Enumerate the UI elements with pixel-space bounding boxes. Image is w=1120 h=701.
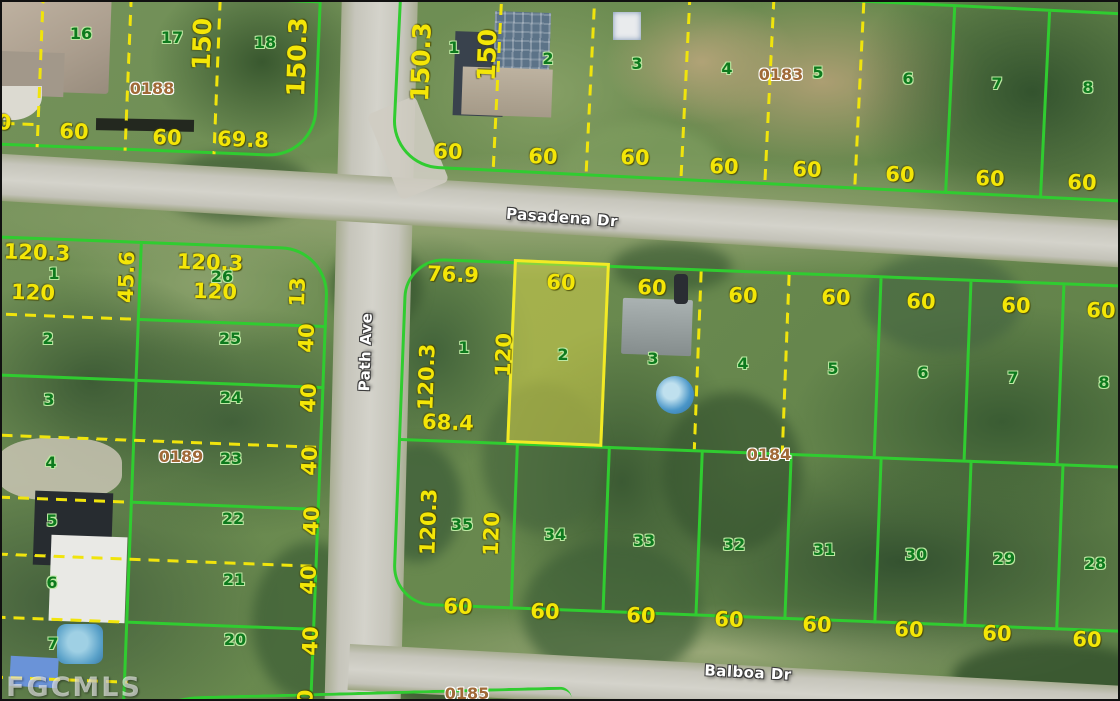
dimension-label: 60 [530,601,560,623]
dimension-label: 0 [0,112,12,133]
dimension-label: 60 [152,127,182,149]
dimension-label: 60 [906,291,936,313]
lot-number: 2 [542,51,553,67]
lot-number: 29 [993,551,1015,567]
lot-number: 7 [47,636,58,652]
street-label-pasadena-dr: Pasadena Dr [506,207,619,230]
lot-number: 1 [458,340,469,356]
lot-number: 2 [557,347,568,363]
dimension-label: 60 [637,277,667,299]
dimension-label: 60 [802,614,832,636]
lot-number: 25 [219,331,241,347]
lot-number: 21 [223,572,245,588]
block-number: 0183 [759,67,804,83]
dimension-label: 150 [474,28,501,81]
dimension-label: 13 [287,277,309,307]
dimension-label: 60 [792,159,822,181]
lot-number: 4 [737,356,748,372]
dimension-label: 69.8 [217,129,270,152]
dimension-label: 60 [821,287,851,309]
dimension-label: 60 [1072,629,1102,651]
dimension-label: 60 [1086,300,1116,322]
dimension-label: 150 [189,17,216,70]
dimension-label: 40 [301,506,323,536]
dimension-label: 68.4 [422,412,475,435]
block-number: 0185 [445,686,490,701]
lot-number: 7 [991,76,1002,92]
lot-number: 16 [70,26,92,42]
lot-number: 26 [211,269,233,285]
dimension-label: 0 [295,689,316,701]
lot-number: 8 [1098,375,1109,391]
dimension-label: 60 [443,596,473,618]
dimension-label: 120 [493,333,516,378]
lot-number: 6 [902,71,913,87]
lot-number: 6 [46,575,57,591]
lot-number: 30 [905,547,927,563]
lot-number: 4 [721,61,732,77]
lot-number: 32 [723,537,745,553]
lot-number: 28 [1084,556,1106,572]
dimension-label: 120.3 [3,241,70,264]
street-label-path-ave: Path Ave [357,312,375,391]
dimension-label: 120.3 [415,343,438,410]
dimension-label: 60 [714,609,744,631]
dimension-label: 40 [298,565,320,595]
dimension-label: 60 [728,285,758,307]
dimension-label: 60 [1067,172,1097,194]
lot-number: 31 [813,542,835,558]
dimension-label: 40 [300,626,322,656]
lot-number: 3 [647,351,658,367]
dimension-label: 120 [11,282,56,305]
dimension-label: 40 [299,446,321,476]
dimension-label: 60 [975,168,1005,190]
block-number: 0188 [130,81,175,97]
lot-number: 5 [812,65,823,81]
lot-number: 5 [827,361,838,377]
lot-number: 3 [43,392,54,408]
dimension-label: 60 [546,272,576,294]
lot-number: 6 [917,365,928,381]
lot-number: 2 [42,331,53,347]
lot-number: 17 [161,30,183,46]
dimension-label: 40 [298,383,320,413]
watermark: FGCMLS [6,672,142,701]
lot-number: 20 [224,632,246,648]
labels-layer: 150150.30606069.8150.3150606060606060606… [2,2,1118,699]
block-number: 0189 [159,449,204,465]
lot-number: 18 [254,35,276,51]
lot-number: 4 [45,455,56,471]
lot-number: 1 [448,40,459,56]
lot-number: 7 [1007,370,1018,386]
dimension-label: 60 [885,164,915,186]
dimension-label: 60 [626,605,656,627]
lot-number: 34 [544,527,566,543]
map-canvas: 150150.30606069.8150.3150606060606060606… [0,0,1120,701]
lot-number: 5 [46,513,57,529]
dimension-label: 150.3 [283,17,311,97]
lot-number: 8 [1082,80,1093,96]
dimension-label: 60 [709,156,739,178]
dimension-label: 60 [433,141,463,163]
lot-number: 35 [451,517,473,533]
lot-number: 23 [220,451,242,467]
dimension-label: 76.9 [427,264,480,287]
dimension-label: 150.3 [407,22,435,102]
dimension-label: 60 [982,623,1012,645]
dimension-label: 40 [296,323,318,353]
dimension-label: 60 [1001,295,1031,317]
dimension-label: 60 [59,121,89,143]
block-number: 0184 [747,447,792,463]
dimension-label: 120.3 [417,488,440,555]
dimension-label: 60 [620,147,650,169]
dimension-label: 60 [894,619,924,641]
dimension-label: 45.6 [116,251,139,304]
lot-number: 22 [222,511,244,527]
lot-number: 1 [48,266,59,282]
dimension-label: 60 [528,146,558,168]
lot-number: 33 [633,533,655,549]
dimension-label: 120 [481,512,504,557]
lot-number: 3 [631,56,642,72]
street-label-balboa-dr: Balboa Dr [704,663,792,683]
lot-number: 24 [220,390,242,406]
